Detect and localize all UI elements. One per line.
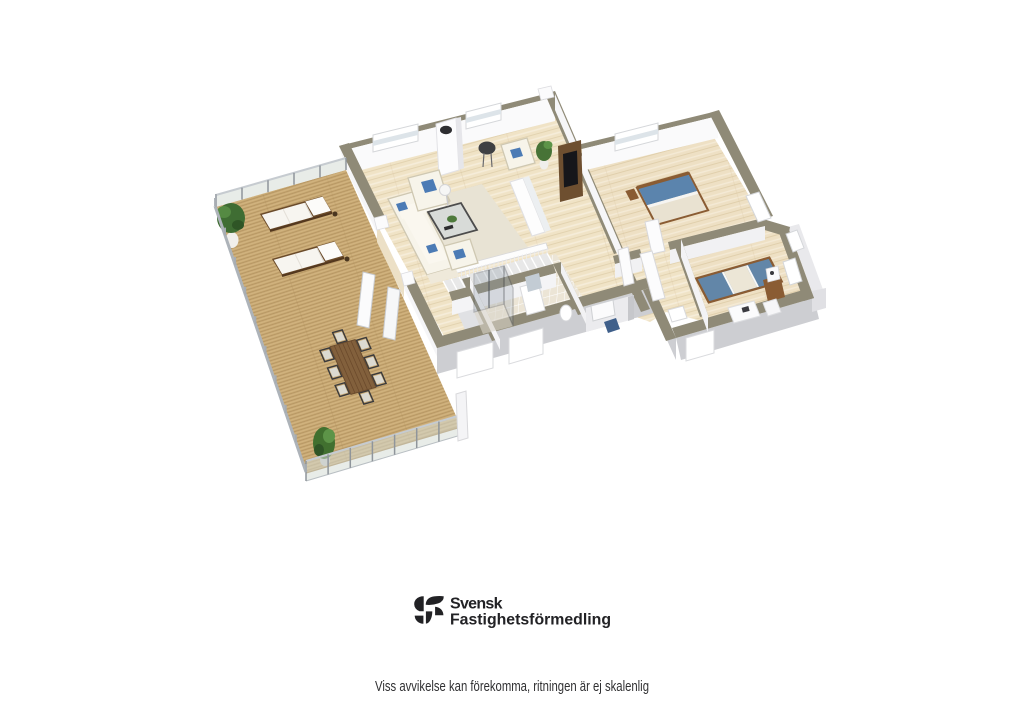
- svg-text:Svensk: Svensk: [450, 596, 503, 613]
- svg-text:Fastighetsförmedling: Fastighetsförmedling: [450, 611, 611, 628]
- svg-text:Viss avvikelse kan förekomma,: Viss avvikelse kan förekomma, ritningen …: [375, 679, 649, 695]
